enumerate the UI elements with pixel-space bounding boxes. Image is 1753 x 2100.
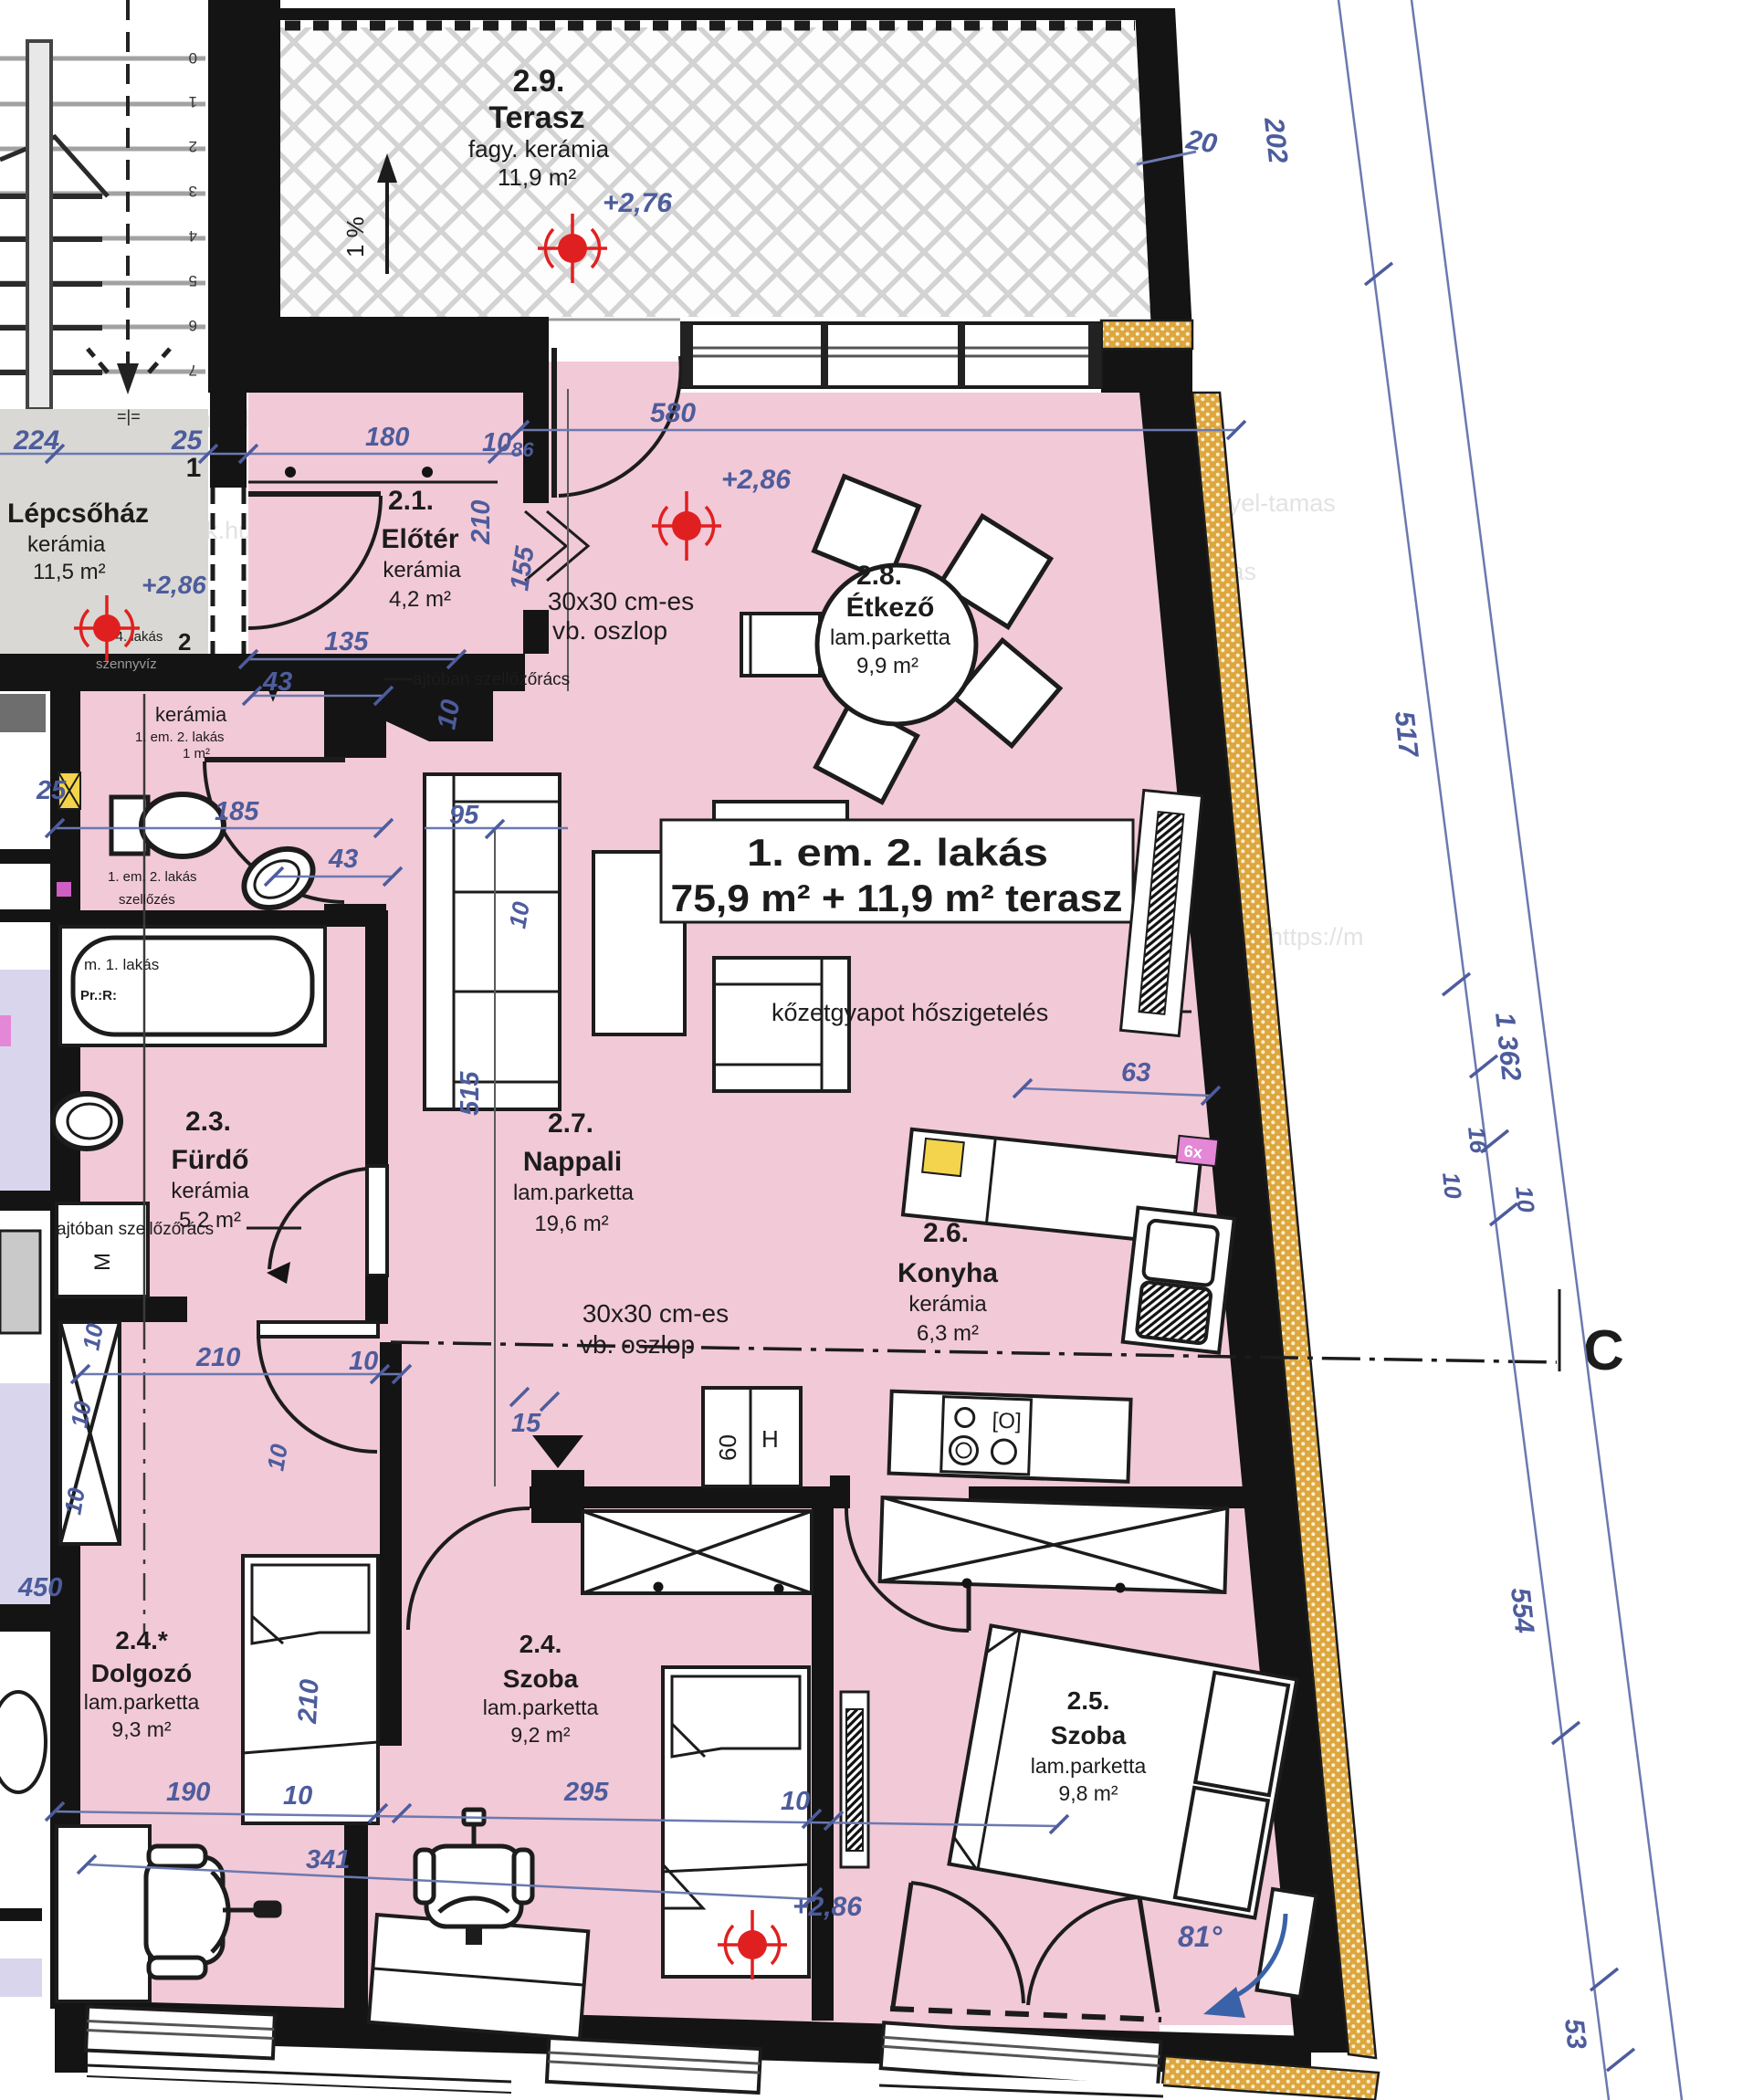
svg-text:10: 10 <box>58 1486 90 1517</box>
svg-text:25: 25 <box>36 776 67 805</box>
svg-text:=|=: =|= <box>117 407 141 425</box>
svg-text:Szoba: Szoba <box>1051 1721 1127 1749</box>
svg-text:341: 341 <box>306 1845 350 1874</box>
svg-text:2.7.: 2.7. <box>548 1108 593 1139</box>
svg-text:30x30 cm-es: 30x30 cm-es <box>583 1299 729 1328</box>
svg-text:lam.parketta: lam.parketta <box>84 1690 200 1714</box>
svg-text:2.4.: 2.4. <box>520 1630 562 1658</box>
svg-text:10: 10 <box>1437 1171 1467 1200</box>
svg-text:H: H <box>761 1425 779 1453</box>
svg-text:210: 210 <box>467 500 496 545</box>
svg-text:Étkező: Étkező <box>846 592 935 623</box>
svg-text:2.6.: 2.6. <box>923 1218 969 1248</box>
svg-text:fagy. kerámia: fagy. kerámia <box>468 135 610 163</box>
svg-text:5: 5 <box>189 272 197 289</box>
svg-text:kerámia: kerámia <box>383 558 461 583</box>
svg-text:10: 10 <box>781 1787 810 1816</box>
svg-text:6: 6 <box>189 317 197 334</box>
svg-text:ajtóban szellőzőrács: ajtóban szellőzőrács <box>413 670 570 689</box>
svg-text:lam.parketta: lam.parketta <box>483 1696 599 1719</box>
svg-text:Terasz: Terasz <box>488 100 584 135</box>
svg-text:190: 190 <box>166 1778 210 1807</box>
svg-text:295: 295 <box>563 1778 609 1807</box>
svg-text:2.8.: 2.8. <box>856 561 902 591</box>
svg-text:vb. oszlop: vb. oszlop <box>580 1330 695 1359</box>
svg-text:+2,86: +2,86 <box>142 571 206 599</box>
svg-text:szellőzés: szellőzés <box>119 892 175 908</box>
svg-text:kerámia: kerámia <box>155 703 227 726</box>
svg-text:kerámia: kerámia <box>171 1179 249 1203</box>
svg-text:81°: 81° <box>1178 1920 1223 1953</box>
svg-text:1. em. 2. lakás: 1. em. 2. lakás <box>108 869 197 885</box>
svg-text:185: 185 <box>215 797 259 826</box>
svg-text:155: 155 <box>505 544 541 593</box>
svg-text:180: 180 <box>365 423 409 452</box>
svg-text:11,5 m²: 11,5 m² <box>33 560 106 584</box>
svg-text:554: 554 <box>1505 1586 1539 1635</box>
svg-text:1: 1 <box>186 453 202 483</box>
svg-text:30x30 cm-es: 30x30 cm-es <box>548 587 694 615</box>
svg-text:Nappali: Nappali <box>523 1147 622 1177</box>
svg-text:10: 10 <box>261 1442 293 1473</box>
svg-text:+2,86: +2,86 <box>793 1892 862 1922</box>
svg-text:Fürdő: Fürdő <box>172 1145 249 1175</box>
svg-text:1: 1 <box>189 93 197 110</box>
svg-text:9,8 m²: 9,8 m² <box>1058 1781 1118 1805</box>
svg-text:lam.parketta: lam.parketta <box>513 1181 635 1205</box>
svg-text:135: 135 <box>324 627 369 656</box>
svg-text:Konyha: Konyha <box>897 1258 998 1288</box>
svg-text:86: 86 <box>511 438 534 461</box>
svg-text:kerámia: kerámia <box>27 532 106 557</box>
svg-text:10: 10 <box>503 899 535 930</box>
svg-text:lam.parketta: lam.parketta <box>830 625 951 650</box>
svg-text:210: 210 <box>293 1678 325 1725</box>
svg-text:580: 580 <box>650 398 696 428</box>
svg-text:Előtér: Előtér <box>381 524 458 554</box>
svg-text:+2,76: +2,76 <box>603 188 672 218</box>
svg-text:75,9 m² + 11,9 m² terasz: 75,9 m² + 11,9 m² terasz <box>671 877 1123 919</box>
svg-text:kerámia: kerámia <box>908 1292 987 1317</box>
svg-text:9,9 m²: 9,9 m² <box>856 654 918 678</box>
svg-text:10: 10 <box>349 1347 378 1376</box>
svg-text:43: 43 <box>328 845 358 874</box>
svg-text:2.3.: 2.3. <box>185 1107 231 1137</box>
svg-text:60: 60 <box>714 1434 741 1461</box>
svg-text:3: 3 <box>189 183 197 200</box>
svg-text:Szoba: Szoba <box>503 1664 579 1693</box>
svg-text:M: M <box>90 1253 115 1271</box>
svg-text:2.1.: 2.1. <box>388 486 434 516</box>
svg-text:0: 0 <box>189 49 197 67</box>
svg-text:95: 95 <box>449 801 479 830</box>
svg-text:lam.parketta: lam.parketta <box>1031 1754 1147 1778</box>
svg-text:m. 1. lakás: m. 1. lakás <box>84 956 159 973</box>
svg-text:10: 10 <box>1510 1184 1540 1213</box>
svg-text:2: 2 <box>189 138 197 155</box>
svg-text:2: 2 <box>178 628 191 656</box>
svg-text:2.4.*: 2.4.* <box>115 1626 168 1654</box>
svg-text:https://m: https://m <box>1269 923 1364 950</box>
svg-text:10: 10 <box>77 1321 109 1352</box>
svg-text:1 m²: 1 m² <box>183 746 210 761</box>
svg-text:53: 53 <box>1559 2017 1591 2051</box>
svg-text:224: 224 <box>13 425 59 456</box>
svg-text:Lépcsőház: Lépcsőház <box>7 499 149 529</box>
svg-text:10: 10 <box>283 1781 312 1811</box>
svg-text:450: 450 <box>17 1573 62 1602</box>
svg-text:9,2 m²: 9,2 m² <box>510 1723 571 1747</box>
svg-text:517: 517 <box>1389 709 1423 760</box>
svg-text:515: 515 <box>456 1071 485 1116</box>
svg-text:ajtóban szellőzőrács: ajtóban szellőzőrács <box>57 1220 214 1239</box>
svg-text:16: 16 <box>1463 1125 1493 1154</box>
svg-text:63: 63 <box>1121 1058 1150 1087</box>
svg-text:202: 202 <box>1258 115 1293 165</box>
svg-text:2.9.: 2.9. <box>513 64 565 99</box>
svg-text:19,6 m²: 19,6 m² <box>534 1212 608 1236</box>
svg-text:4,2 m²: 4,2 m² <box>389 587 451 612</box>
svg-text:1 %: 1 % <box>341 216 369 257</box>
svg-text:25: 25 <box>171 425 204 456</box>
svg-text:11,9 m²: 11,9 m² <box>498 163 577 191</box>
svg-text:[O]: [O] <box>992 1409 1022 1434</box>
svg-text:2.5.: 2.5. <box>1067 1686 1110 1715</box>
svg-text:kőzetgyapot hőszigetelés: kőzetgyapot hőszigetelés <box>772 999 1048 1026</box>
svg-text:10: 10 <box>432 698 466 731</box>
svg-text:1. em. 2. lakás: 1. em. 2. lakás <box>135 730 225 745</box>
svg-text:1. em. 2. lakás: 1. em. 2. lakás <box>747 831 1048 874</box>
svg-text:10: 10 <box>65 1399 97 1430</box>
svg-text:9,3 m²: 9,3 m² <box>111 1717 172 1741</box>
svg-text:Pr.:R:: Pr.:R: <box>80 988 117 1003</box>
svg-text:6,3 m²: 6,3 m² <box>917 1321 979 1346</box>
svg-text:4: 4 <box>189 227 197 245</box>
svg-text:szennyvíz: szennyvíz <box>96 656 157 672</box>
svg-text:15: 15 <box>511 1409 541 1438</box>
svg-text:210: 210 <box>195 1343 240 1372</box>
svg-text:43: 43 <box>262 667 292 697</box>
svg-text:vb. oszlop: vb. oszlop <box>552 616 667 645</box>
svg-text:+2,86: +2,86 <box>721 465 791 495</box>
svg-text:6x: 6x <box>1183 1142 1203 1162</box>
svg-text:Dolgozó: Dolgozó <box>91 1659 192 1687</box>
svg-text:7: 7 <box>189 362 197 379</box>
